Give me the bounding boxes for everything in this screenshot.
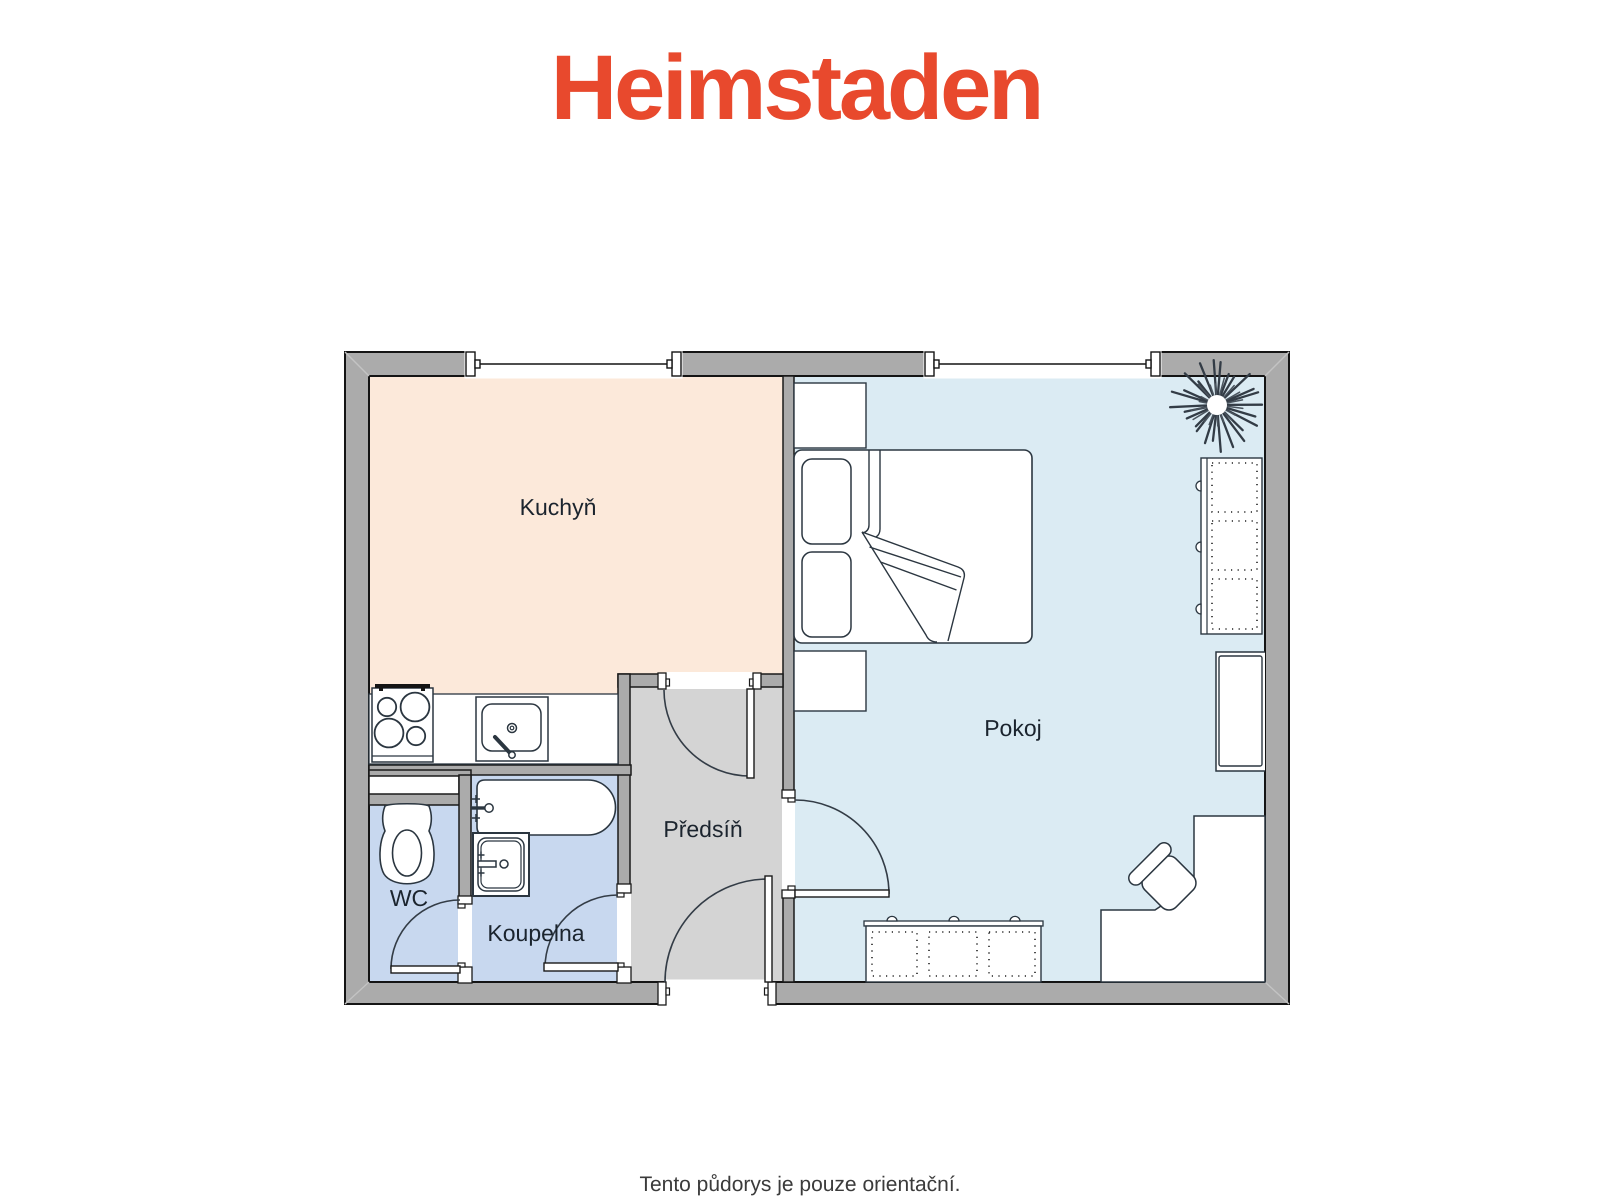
svg-text:WC: WC [390,885,428,911]
svg-text:Tento půdorys je pouze orienta: Tento půdorys je pouze orientační. [639,1173,960,1196]
svg-text:Koupelna: Koupelna [487,920,584,946]
svg-text:Pokoj: Pokoj [984,715,1042,741]
svg-text:Kuchyň: Kuchyň [520,494,597,520]
svg-text:Předsíň: Předsíň [663,816,742,842]
svg-text:Heimstaden: Heimstaden [551,37,1042,139]
